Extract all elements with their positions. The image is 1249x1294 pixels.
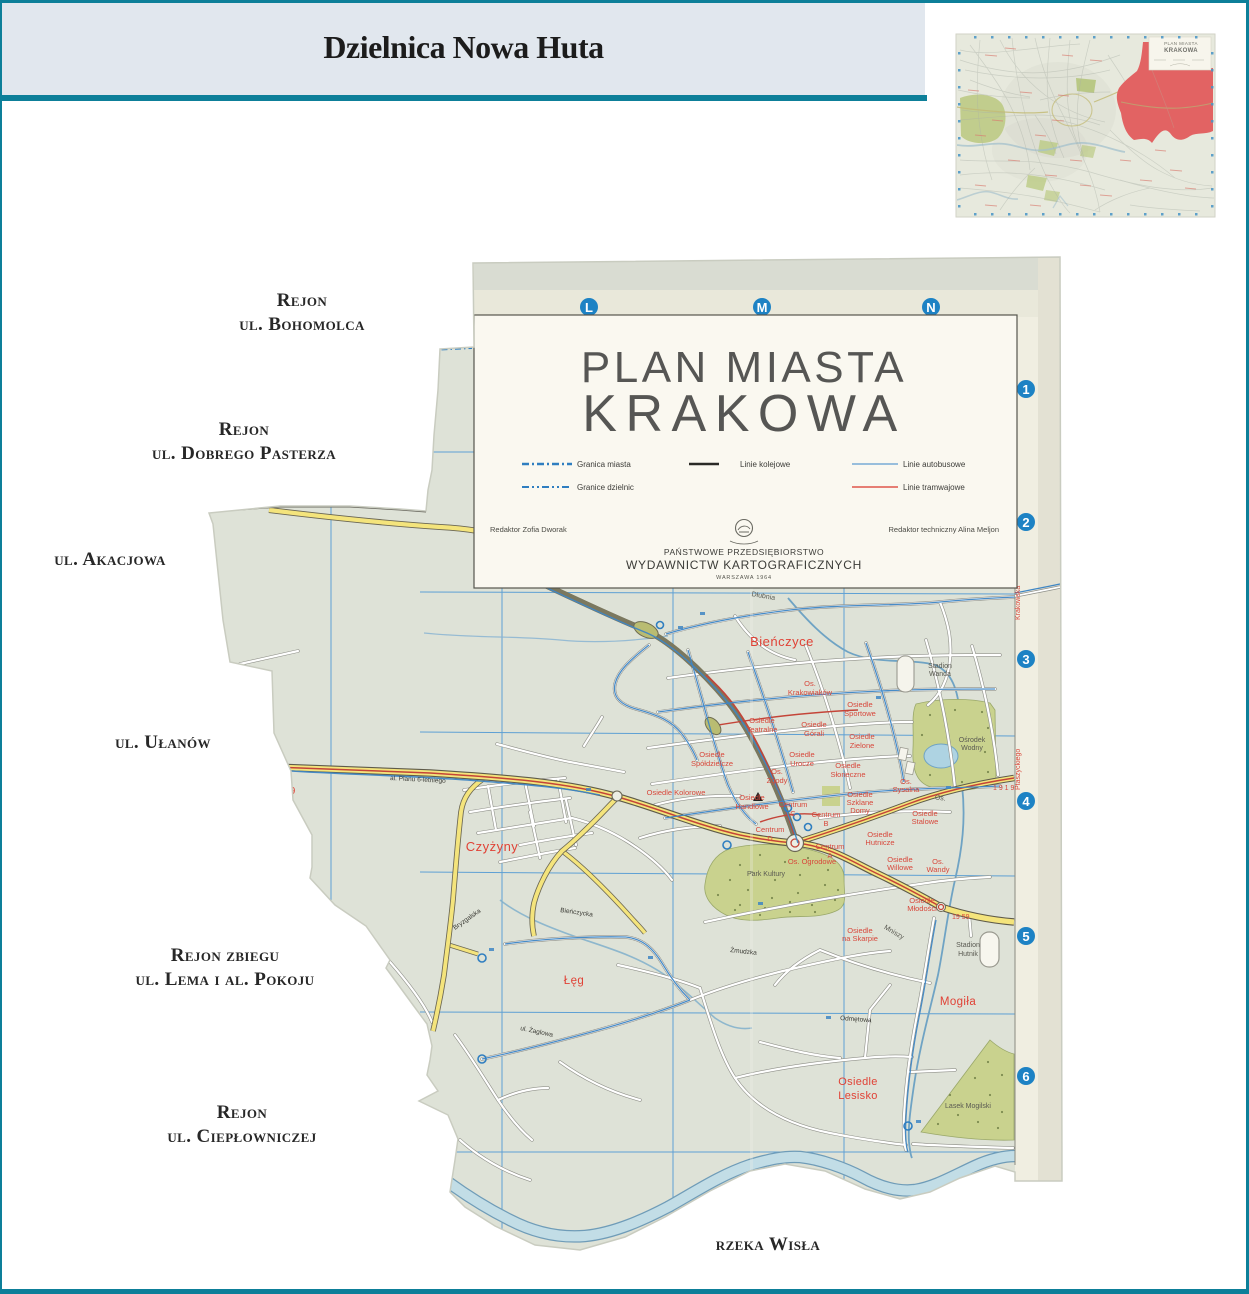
svg-text:Stalowe: Stalowe — [912, 817, 939, 826]
svg-text:Młodości: Młodości — [907, 904, 937, 913]
svg-text:19 59: 19 59 — [952, 914, 970, 921]
svg-text:Hutnik: Hutnik — [958, 951, 978, 958]
svg-text:Os. Ogrodowe: Os. Ogrodowe — [788, 857, 836, 866]
svg-text:Czyżyny: Czyżyny — [466, 839, 519, 854]
svg-text:WYDAWNICTW KARTOGRAFICZNYCH: WYDAWNICTW KARTOGRAFICZNYCH — [626, 558, 862, 572]
svg-text:Sportowe: Sportowe — [844, 709, 876, 718]
svg-text:Linie kolejowe: Linie kolejowe — [740, 460, 791, 469]
svg-text:Sysalna: Sysalna — [893, 785, 921, 794]
svg-text:Centrum: Centrum — [756, 825, 785, 834]
svg-text:Urocze: Urocze — [790, 759, 814, 768]
svg-text:Stadion: Stadion — [956, 942, 980, 949]
svg-text:Park Kultury: Park Kultury — [747, 871, 786, 878]
svg-text:Mogiła: Mogiła — [940, 996, 976, 1008]
svg-text:Wodny: Wodny — [961, 745, 983, 752]
svg-text:KRAKOWA: KRAKOWA — [1164, 48, 1198, 54]
svg-text:1: 1 — [1022, 382, 1029, 397]
svg-text:Zielone: Zielone — [850, 741, 875, 750]
svg-text:Zgody: Zgody — [767, 776, 788, 785]
svg-text:Centrum: Centrum — [812, 810, 841, 819]
svg-text:Łęg: Łęg — [564, 975, 584, 987]
svg-text:Krakowska: Krakowska — [1015, 586, 1022, 620]
svg-text:3: 3 — [1022, 652, 1029, 667]
svg-text:Osiedle: Osiedle — [739, 793, 764, 802]
svg-text:Centrum: Centrum — [816, 842, 845, 851]
svg-text:Os.: Os. — [771, 767, 783, 776]
svg-text:Osiedle: Osiedle — [847, 700, 872, 709]
svg-text:Os.: Os. — [804, 679, 816, 688]
svg-text:Górali: Górali — [804, 729, 824, 738]
svg-text:Osiedle: Osiedle — [835, 761, 860, 770]
svg-text:Osiedle Kolorowe: Osiedle Kolorowe — [647, 788, 706, 797]
svg-text:Słoneczne: Słoneczne — [830, 770, 865, 779]
svg-text:na Skarpie: na Skarpie — [842, 934, 878, 943]
svg-text:Osiedle: Osiedle — [838, 1076, 877, 1088]
svg-text:Hutnicze: Hutnicze — [865, 838, 894, 847]
svg-text:KRAKOWA: KRAKOWA — [582, 385, 905, 443]
svg-text:Stadion: Stadion — [928, 663, 952, 670]
svg-text:6: 6 — [1022, 1069, 1029, 1084]
svg-text:Teatralne: Teatralne — [747, 725, 778, 734]
svg-text:D: D — [767, 834, 773, 843]
svg-text:Lasek Mogilski: Lasek Mogilski — [945, 1103, 991, 1110]
svg-text:L: L — [585, 300, 593, 315]
svg-text:5: 5 — [1022, 929, 1029, 944]
svg-text:Handlowe: Handlowe — [735, 802, 768, 811]
svg-text:4: 4 — [1022, 794, 1030, 809]
svg-text:Linie autobusowe: Linie autobusowe — [903, 460, 966, 469]
svg-text:Ośrodek: Ośrodek — [959, 737, 986, 744]
svg-text:Bieńczyce: Bieńczyce — [750, 634, 814, 649]
svg-text:Granica miasta: Granica miasta — [577, 460, 631, 469]
svg-text:Wanda: Wanda — [929, 671, 951, 678]
svg-text:Domy: Domy — [850, 806, 870, 815]
svg-text:Osiedle: Osiedle — [801, 720, 826, 729]
svg-text:Granice dzielnic: Granice dzielnic — [577, 483, 634, 492]
svg-text:Osiedle: Osiedle — [789, 750, 814, 759]
svg-text:Osiedle: Osiedle — [749, 716, 774, 725]
svg-text:Spółdzielcze: Spółdzielcze — [691, 759, 733, 768]
svg-text:Krakowiaków: Krakowiaków — [788, 688, 833, 697]
svg-text:PLAN MIASTA: PLAN MIASTA — [1164, 41, 1198, 46]
svg-text:Redaktor Zofia Dworak: Redaktor Zofia Dworak — [490, 525, 567, 534]
svg-text:Linie tramwajowe: Linie tramwajowe — [903, 483, 965, 492]
svg-text:Lesisko: Lesisko — [838, 1090, 877, 1102]
svg-text:2: 2 — [1022, 515, 1029, 530]
svg-text:Osiedle: Osiedle — [699, 750, 724, 759]
svg-text:Centrum: Centrum — [779, 800, 808, 809]
svg-text:M: M — [757, 300, 768, 315]
svg-text:N: N — [926, 300, 935, 315]
svg-text:Osiedle: Osiedle — [849, 732, 874, 741]
svg-text:Willowe: Willowe — [887, 863, 913, 872]
svg-text:PAŃSTWOWE PRZEDSIĘBIORSTWO: PAŃSTWOWE PRZEDSIĘBIORSTWO — [664, 547, 824, 557]
svg-text:Wandy: Wandy — [926, 865, 949, 874]
svg-text:Ptaszyckiego: Ptaszyckiego — [1015, 749, 1022, 790]
svg-text:B: B — [823, 819, 828, 828]
svg-text:C: C — [790, 809, 796, 818]
svg-text:1 9 1 9: 1 9 1 9 — [993, 785, 1015, 792]
svg-text:WARSZAWA 1964: WARSZAWA 1964 — [716, 575, 772, 581]
svg-text:Redaktor techniczny Alina Melj: Redaktor techniczny Alina Meljon — [889, 525, 999, 534]
